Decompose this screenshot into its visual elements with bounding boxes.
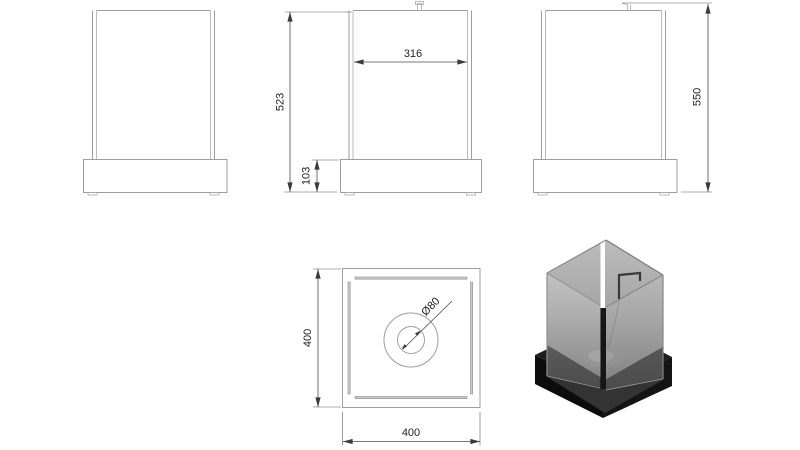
render-front-gap-light (601, 240, 606, 308)
igniter-rod-side (622, 3, 631, 11)
product-render (535, 240, 672, 418)
glass-slot-bottom (355, 397, 467, 399)
dim-label-d80: Ø80 (419, 295, 442, 318)
dim-label-400-horizontal: 400 (402, 427, 420, 439)
dimension-plan-width: 400 (343, 412, 481, 446)
dim-label-400-vertical: 400 (302, 329, 314, 347)
glass-slot-right (471, 282, 473, 394)
burner-outer-circle (384, 313, 438, 367)
front-view (84, 11, 228, 196)
dim-label-316: 316 (404, 48, 422, 60)
technical-drawing-canvas: 316 523 103 (0, 0, 800, 450)
glass-slot-top (355, 277, 467, 279)
dimension-burner-diameter: Ø80 (402, 295, 453, 349)
plan-view: Ø80 400 400 (302, 269, 480, 446)
render-front-gap-dark (601, 308, 607, 389)
dimensioned-front-view: 316 523 103 (275, 2, 482, 196)
dimension-overall-height: 550 (622, 3, 712, 192)
dimension-base-height: 103 (301, 160, 340, 192)
glass-slot-left (348, 282, 350, 394)
fireplace-technical-drawing: 316 523 103 (0, 0, 800, 450)
dim-label-523: 523 (275, 93, 287, 111)
dim-label-103: 103 (301, 167, 313, 185)
overall-height-view: 550 (534, 3, 713, 195)
dimension-plan-depth: 400 (302, 269, 341, 407)
dimension-glass-width: 316 (354, 48, 467, 62)
igniter-rod-front (416, 2, 424, 11)
dim-label-550: 550 (692, 88, 704, 106)
